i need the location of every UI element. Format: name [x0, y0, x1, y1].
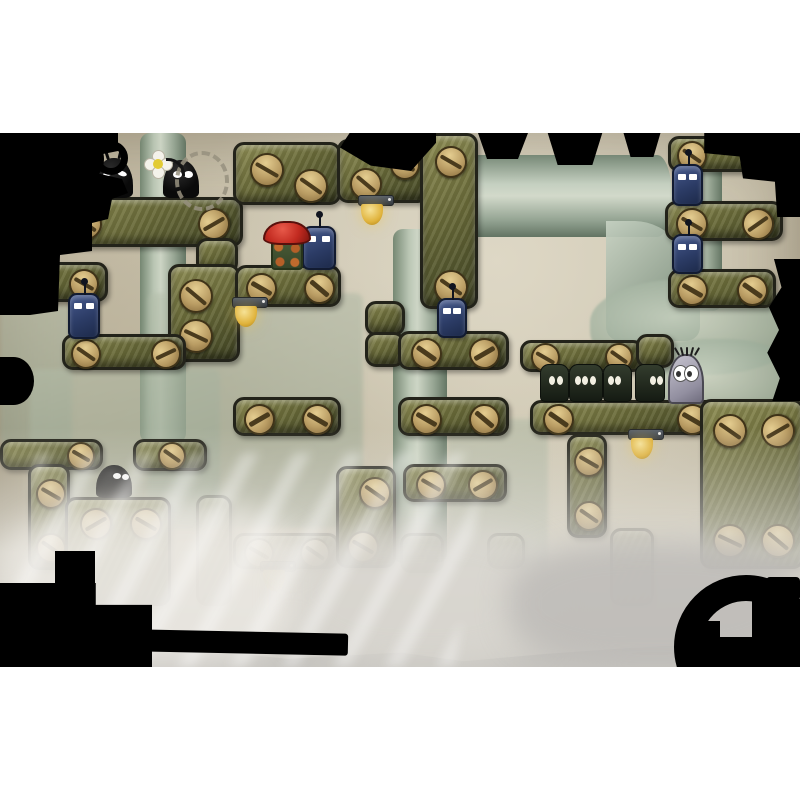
- wooden-plank: [530, 400, 718, 435]
- screw-slot: [356, 175, 377, 194]
- ink-silhouette-bottom-left-step: [55, 551, 95, 589]
- creature-hair-icon: [686, 347, 688, 356]
- creature-eye: [615, 376, 621, 385]
- screw: [287, 162, 334, 209]
- wooden-plank: [636, 334, 674, 368]
- robot-antenna-icon: [319, 217, 321, 228]
- wooden-plank: [196, 495, 232, 606]
- screw-slot: [747, 215, 769, 232]
- screw-slot: [305, 545, 325, 561]
- screw: [463, 465, 504, 506]
- screw-slot: [610, 350, 629, 365]
- creature-eye: [657, 376, 663, 385]
- screw-slot: [299, 177, 322, 195]
- screw: [569, 442, 610, 483]
- screw: [244, 147, 290, 193]
- screw-slot: [85, 516, 108, 532]
- creature-eye: [575, 376, 581, 385]
- screw-slot: [255, 162, 279, 179]
- robot-eye: [678, 174, 686, 180]
- letterbox-bottom: [0, 667, 800, 800]
- screw: [146, 334, 186, 374]
- wooden-plank: [233, 142, 341, 205]
- square-creature[interactable]: [635, 364, 665, 402]
- screw-slot: [309, 280, 329, 298]
- creature-eye: [590, 376, 596, 385]
- gray-creature[interactable]: [668, 354, 704, 404]
- screw-slot: [76, 346, 96, 362]
- screw-slot: [579, 508, 599, 524]
- screw-slot: [203, 216, 226, 232]
- screw-slot: [185, 286, 207, 306]
- screw-slot: [579, 455, 600, 470]
- screw-slot: [767, 531, 789, 551]
- screw: [706, 407, 753, 454]
- screw: [294, 532, 336, 574]
- robot-eye: [689, 244, 697, 250]
- hero-red-cap: [263, 221, 311, 245]
- screw: [298, 267, 342, 311]
- game-viewport[interactable]: [0, 133, 800, 667]
- screw-slot: [682, 283, 704, 298]
- robot-eye: [86, 303, 94, 309]
- screw-slot: [251, 281, 273, 296]
- screw-slot: [352, 539, 375, 555]
- letterbox-top: [0, 0, 800, 133]
- screw-slot: [766, 423, 790, 440]
- screw: [172, 272, 220, 320]
- square-creature[interactable]: [569, 364, 603, 402]
- wooden-plank: [403, 464, 507, 502]
- dashed-circle-marker: [175, 151, 229, 211]
- wooden-plank: [487, 533, 525, 569]
- screw-slot: [41, 487, 62, 502]
- screw: [736, 202, 781, 247]
- screw: [153, 437, 192, 476]
- screw-slot: [249, 412, 271, 427]
- screw-slot: [71, 449, 90, 462]
- wooden-plank: [133, 439, 207, 471]
- screw-slot: [416, 412, 438, 427]
- screw-slot: [184, 328, 209, 343]
- screw-slot: [681, 216, 704, 232]
- robot-eye: [689, 174, 697, 180]
- creature-eye: [684, 365, 699, 382]
- screw: [411, 465, 452, 506]
- robot-enemy[interactable]: [672, 234, 703, 274]
- creature-eye: [582, 376, 588, 385]
- screw: [353, 471, 398, 516]
- lamp: [358, 195, 394, 227]
- lamp: [260, 561, 296, 593]
- wooden-plank: [400, 533, 444, 573]
- blob-creature[interactable]: [163, 160, 199, 198]
- ink-arch-leg: [692, 621, 720, 667]
- screw-slot: [718, 422, 741, 440]
- square-creature[interactable]: [540, 364, 569, 402]
- screw: [74, 502, 118, 546]
- screw-slot: [474, 411, 494, 429]
- screw: [296, 398, 338, 440]
- wooden-plank: [398, 397, 509, 436]
- screw: [731, 269, 774, 312]
- creature-pupil: [687, 371, 692, 377]
- creature-eye: [608, 376, 614, 385]
- wooden-plank: [336, 466, 396, 568]
- screw: [568, 495, 610, 537]
- screw-slot: [364, 484, 386, 501]
- screw-slot: [742, 282, 763, 299]
- robot-antenna-icon: [688, 225, 690, 236]
- screw: [463, 332, 505, 374]
- wooden-plank: [365, 301, 405, 336]
- ink-curl-icon: [94, 141, 128, 175]
- screw-slot: [416, 345, 437, 362]
- hero-character[interactable]: [263, 221, 307, 266]
- robot-antenna-icon: [452, 289, 454, 300]
- robot-eye: [322, 236, 330, 242]
- screw: [238, 398, 280, 440]
- lamp-bulb: [631, 438, 653, 459]
- screw-slot: [307, 412, 329, 427]
- lamp-bulb: [361, 204, 383, 225]
- screw-slot: [718, 533, 743, 548]
- wooden-plank: [62, 334, 186, 370]
- screw: [124, 502, 168, 546]
- lamp-bulb: [235, 306, 257, 327]
- screw-slot: [135, 516, 158, 532]
- robot-eye: [74, 303, 82, 309]
- square-creature[interactable]: [603, 364, 632, 402]
- screw-slot: [155, 347, 177, 360]
- creature-pupil: [676, 371, 681, 377]
- robot-antenna-icon: [84, 284, 86, 295]
- ink-gear-teeth: [452, 133, 670, 167]
- screw-slot: [474, 346, 496, 361]
- screw: [341, 525, 385, 569]
- screw: [755, 408, 800, 454]
- screw-slot: [548, 411, 569, 428]
- creature-eye: [549, 376, 555, 385]
- screw: [707, 518, 752, 563]
- lamp: [232, 297, 268, 329]
- wooden-plank: [233, 397, 341, 436]
- robot-eye: [678, 244, 686, 250]
- screw-slot: [249, 546, 270, 561]
- robot-eye: [453, 308, 461, 314]
- ink-arch-nub: [766, 577, 800, 601]
- robot-eye: [443, 308, 451, 314]
- ink-silhouette-bottom-right: [618, 563, 800, 667]
- screw-slot: [535, 351, 555, 365]
- creature-eye: [557, 376, 563, 385]
- flower-icon: [144, 150, 172, 178]
- robot-enemy[interactable]: [437, 298, 467, 338]
- robot-antenna-icon: [688, 155, 690, 166]
- screw: [671, 269, 713, 311]
- creature-eye: [113, 473, 121, 479]
- creature-eye: [122, 474, 129, 480]
- gear-tooth: [478, 133, 528, 159]
- screw: [65, 333, 107, 375]
- screw-slot: [163, 449, 182, 464]
- flower-center: [153, 159, 163, 169]
- screw: [463, 398, 507, 442]
- screw-slot: [472, 478, 493, 493]
- robot-enemy[interactable]: [68, 293, 100, 339]
- robot-enemy[interactable]: [672, 164, 703, 206]
- screw: [405, 398, 447, 440]
- gear-tooth: [544, 133, 606, 165]
- wooden-plank: [567, 434, 607, 538]
- lamp: [628, 429, 664, 461]
- screw: [754, 517, 800, 565]
- wooden-plank: [700, 399, 800, 569]
- creature-eye: [650, 376, 656, 385]
- screw-slot: [421, 478, 442, 493]
- wooden-plank: [668, 269, 776, 308]
- gear-tooth: [620, 133, 664, 157]
- screw: [405, 332, 448, 375]
- lamp-bulb: [263, 570, 285, 591]
